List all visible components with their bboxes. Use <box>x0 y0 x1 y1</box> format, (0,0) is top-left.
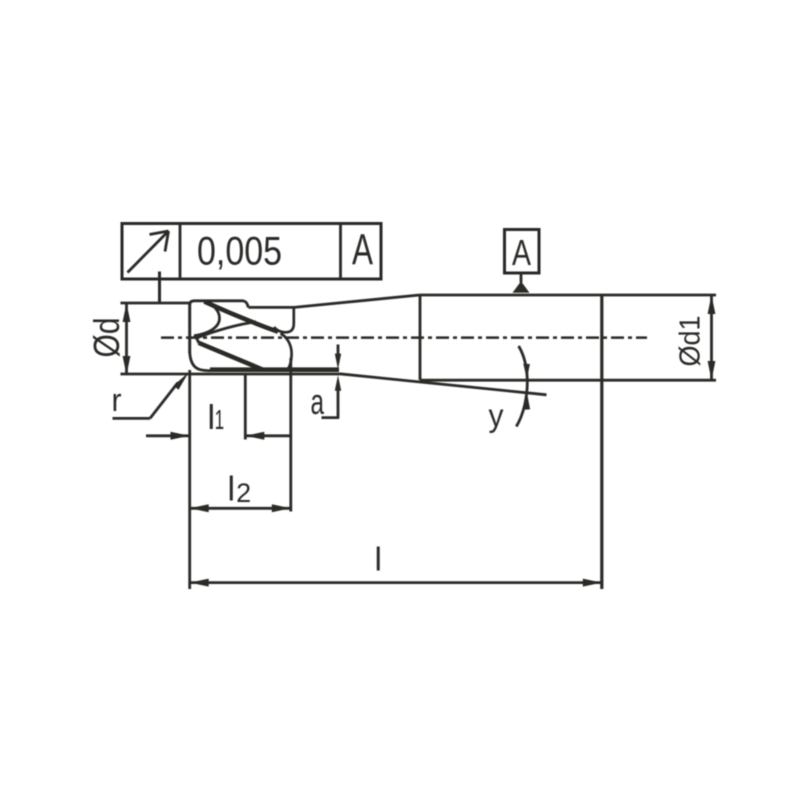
svg-text:Ød1: Ød1 <box>675 316 707 367</box>
svg-text:Ød: Ød <box>86 318 127 358</box>
svg-text:y: y <box>489 398 504 434</box>
svg-text:A: A <box>352 226 373 275</box>
svg-text:A: A <box>512 232 531 273</box>
svg-text:l1: l1 <box>208 399 225 437</box>
svg-text:l: l <box>375 541 382 578</box>
svg-text:0,005: 0,005 <box>197 230 282 274</box>
svg-text:r: r <box>112 382 122 418</box>
svg-text:a: a <box>311 381 325 422</box>
